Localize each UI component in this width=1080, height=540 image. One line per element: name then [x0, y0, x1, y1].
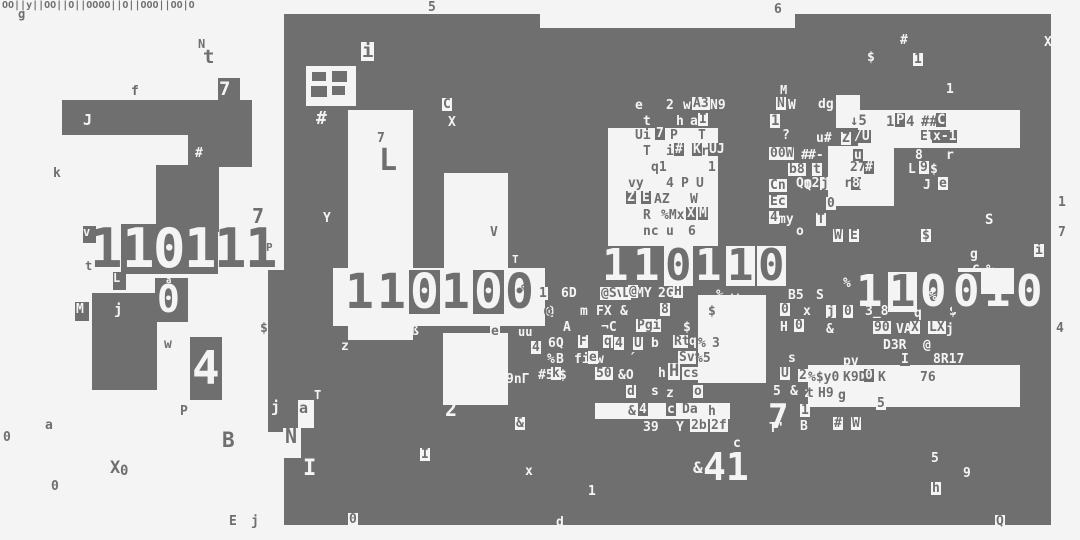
glyph: E [806, 108, 820, 132]
glyph: N [776, 97, 786, 110]
window-icon-pane [312, 72, 326, 81]
glyph: M [780, 84, 787, 96]
glyph: U [696, 177, 704, 190]
glyph: 1 [1058, 196, 1066, 209]
glyph: K9D [843, 371, 866, 384]
glyph: w [731, 291, 739, 304]
glyph: R [643, 209, 651, 222]
big-number-3-digit: 1 [888, 272, 917, 312]
glyph: E [641, 191, 651, 204]
glyph: D3R [883, 339, 906, 352]
big-number-0-digit: 1 [90, 224, 123, 274]
glyph: 1 [800, 404, 810, 417]
glyph: P [681, 177, 689, 190]
glyph: $ [867, 51, 875, 64]
window-icon-pane [332, 86, 345, 95]
glyph: a [690, 115, 698, 128]
big-number-3-digit: 0 [1016, 272, 1043, 312]
glyph: 7 [219, 80, 230, 99]
glyph: T [643, 145, 651, 158]
glyph: V [490, 226, 498, 239]
glyph: uu [518, 326, 532, 338]
glyph: 9 [919, 161, 929, 174]
glyph: x [525, 465, 533, 478]
glyph: nc [643, 225, 659, 238]
glyph: # [833, 417, 843, 430]
glyph: @ [923, 339, 931, 352]
glyph: & [628, 405, 636, 418]
glyph: u# [816, 132, 832, 145]
glyph: h [708, 405, 716, 418]
glyph: 5 [931, 452, 939, 465]
glyph: my [778, 213, 794, 226]
glyph: g [18, 8, 25, 20]
glyph: 6 [773, 3, 783, 16]
glyph: $ [930, 163, 938, 176]
big-number-2-digit: 1 [633, 246, 660, 286]
glyph: 5 [876, 397, 886, 410]
glyph: h [931, 482, 941, 495]
glyph: 1 [708, 161, 716, 174]
glyph: @ [544, 305, 552, 318]
glyph: 4 [614, 337, 624, 350]
glyph: & [620, 305, 628, 318]
glyph: P [670, 129, 678, 142]
glyph: E [228, 515, 238, 528]
glyph: J [83, 113, 92, 128]
glyph: $ [708, 305, 716, 318]
glyph: I [698, 113, 708, 126]
glyph: Sv [678, 351, 696, 364]
glyph: M [698, 207, 708, 220]
glyph: j [946, 323, 954, 336]
glyph: X [686, 207, 696, 220]
glyph: T' [769, 422, 785, 435]
glyph: & [790, 385, 798, 398]
glyph: AZ [654, 193, 670, 206]
glyph: w [683, 99, 691, 112]
glyph: 1 [770, 114, 780, 128]
glyph: 0 [826, 197, 836, 210]
glyph: NRQ6 [891, 98, 922, 111]
big-number-0-digit: 1 [183, 224, 218, 274]
glyph: LX [928, 321, 946, 334]
glyph: pv [843, 355, 859, 368]
glyph: 6D [561, 287, 577, 300]
glyph: q [688, 335, 698, 348]
glyph: 1 [946, 83, 954, 96]
glyph: i [361, 42, 374, 61]
block [92, 293, 157, 390]
glyph: j [114, 303, 122, 317]
glyph: S [816, 289, 824, 302]
glyph: 3 [712, 337, 720, 350]
glyph: Cn [769, 179, 787, 192]
glyph: t [812, 163, 822, 176]
glyph: q1 [651, 161, 667, 174]
big-number-2-digit: 0 [664, 246, 693, 286]
glyph: M [76, 303, 84, 316]
big-number-3-digit: 0 [920, 272, 947, 312]
glyph: 8 [660, 303, 670, 316]
glyph: g [970, 248, 978, 261]
glyph: P [895, 113, 905, 127]
block [268, 270, 284, 400]
glyph: e [490, 325, 500, 338]
glyph: 7 [1058, 226, 1066, 239]
glyph: 6 [688, 225, 696, 238]
glyph: A3 [692, 97, 710, 110]
glyph: ß [411, 325, 419, 338]
glyph: 0 [348, 513, 358, 526]
glyph: $ [921, 229, 931, 242]
glyph: 4 [192, 345, 220, 391]
glyph: & [693, 460, 703, 476]
glyph: 2 [798, 369, 808, 382]
big-number-3-digit: 0 [952, 272, 981, 312]
glyph: P [180, 405, 188, 418]
glyph: # [900, 34, 908, 47]
glyph: 0 [843, 305, 853, 318]
glyph: B [222, 430, 235, 451]
glyph: #- [808, 149, 824, 162]
glyph: cs [682, 367, 700, 380]
glyph: /U [853, 130, 871, 143]
glyph: 00W [769, 147, 794, 160]
glyph: J [923, 179, 931, 192]
glyph: Da [681, 403, 699, 416]
glyph: m [580, 305, 588, 318]
glyph: % [843, 277, 851, 290]
glyph: 2 [445, 399, 457, 419]
glyph: K [878, 371, 886, 384]
big-number-0-digit: 1 [214, 224, 247, 274]
glyph: I [303, 458, 316, 480]
glyph: 2f [710, 419, 728, 432]
glyph: 41 [703, 448, 749, 486]
glyph: d [556, 516, 564, 529]
glyph: 39 [643, 421, 659, 434]
big-number-2-digit: 1 [695, 246, 722, 286]
glyph: T [816, 213, 826, 226]
glyph: & [826, 323, 834, 336]
glyph: 50 [595, 367, 613, 380]
glyph: X [910, 321, 920, 334]
glyph: FX [596, 305, 612, 318]
glyph: 5 [428, 1, 436, 14]
glyph: # [864, 161, 874, 174]
glyph: o [796, 225, 804, 238]
big-number-1-digit: 0 [473, 270, 504, 314]
big-number-1-digit: 0 [409, 270, 440, 314]
glyph: 0 [794, 319, 804, 332]
glyph: 76 [920, 371, 936, 384]
glyph: L [908, 163, 916, 176]
glyph: 1 [538, 287, 548, 300]
glyph: i [666, 145, 674, 158]
glyph: 2 [666, 99, 674, 112]
glyph: 8R17 [933, 353, 964, 366]
glyph: s [788, 352, 796, 365]
glyph: j [820, 177, 830, 190]
glyph: t [643, 115, 651, 128]
glyph: q [603, 335, 613, 348]
glyph: N [285, 426, 297, 446]
glyph: ¬C [601, 321, 617, 334]
glyph: $ [683, 321, 691, 334]
glyph: t [806, 387, 814, 400]
glyph: r [946, 149, 954, 162]
glyph: 0 [2, 431, 12, 444]
glyph: W [851, 417, 861, 430]
glyph: 5 [884, 149, 892, 162]
glyph: N9 [710, 99, 726, 112]
glyph: I [900, 353, 910, 366]
glyph: x-1 [932, 130, 957, 143]
big-number-1-digit: 0 [505, 270, 534, 314]
big-number-1-digit: 1 [377, 270, 406, 314]
glyph: W [833, 229, 843, 242]
glyph: E [849, 229, 859, 242]
glyph: U [633, 337, 643, 350]
glyph: 4 [638, 403, 648, 416]
glyph: # [316, 110, 327, 128]
glyph: w [596, 353, 604, 366]
glyph: u [666, 225, 674, 238]
glyph: Y [676, 421, 684, 434]
patch [540, 14, 795, 28]
glyph: W [690, 193, 698, 206]
glyph: j [271, 400, 280, 415]
glyph: t [203, 48, 214, 67]
glyph: B [556, 353, 564, 366]
glyph: ? [782, 129, 790, 142]
glyph: b8 [788, 163, 806, 176]
glyph: 90 [873, 321, 891, 334]
glyph: 9nΓ [506, 373, 529, 386]
patch [444, 173, 508, 270]
glyph: B5 [788, 289, 804, 302]
glyph: Ec [769, 195, 787, 208]
glyph: 1 [913, 53, 923, 66]
glyph: f [131, 85, 139, 98]
glyph: 0 [780, 303, 790, 316]
glyph: %5 [695, 352, 711, 365]
glyph: Z [499, 389, 507, 402]
glyph: 1 [588, 485, 596, 498]
glyph: ´ [628, 353, 636, 366]
glyph: Z [841, 132, 851, 145]
glyph: 4 [666, 177, 674, 190]
glyph: & [515, 417, 525, 430]
glyph: $ [260, 322, 268, 335]
glyph: X [448, 116, 456, 129]
glyph: H [780, 321, 788, 334]
glyph: C [936, 113, 946, 127]
glyph: X [1044, 36, 1052, 49]
glyph: a [299, 401, 308, 416]
glyph: 9 [963, 467, 971, 480]
glyph: S [984, 213, 994, 227]
glyph: s [651, 385, 659, 398]
glyph: vy [628, 177, 644, 190]
big-number-3-digit: 1 [984, 272, 1011, 312]
big-number-1-digit: 1 [441, 270, 470, 314]
glyph: # [195, 147, 203, 160]
glyph: j [251, 515, 259, 528]
glyph: H [668, 363, 680, 380]
glyph: UJ [708, 143, 726, 156]
glyph: oyk@ [891, 132, 922, 145]
glyph: U [780, 367, 790, 380]
glyph: g [838, 389, 846, 402]
glyph: o [693, 385, 703, 398]
window-icon-pane [311, 86, 327, 97]
big-number-0-digit: 1 [245, 224, 278, 274]
glyph: b [651, 337, 659, 350]
glyph: i [1034, 244, 1044, 257]
glyph: w [164, 338, 172, 351]
big-number-2-digit: 1 [602, 246, 629, 286]
glyph: j [826, 305, 836, 318]
big-number-1-digit: 1 [345, 270, 374, 314]
glyph: h [658, 367, 666, 380]
glyph: d [626, 385, 636, 398]
glyph: Y [323, 212, 331, 225]
glyph: 0 [120, 464, 128, 478]
glyph: 6Q [548, 337, 564, 350]
glyph: C [442, 98, 452, 111]
glyph: 4 [1056, 322, 1064, 335]
glyph: 7 [655, 127, 665, 140]
glyph: $ [559, 369, 567, 382]
glyph: 1 [886, 115, 894, 129]
glyph: e [635, 99, 643, 112]
window-icon-pane [332, 71, 347, 82]
glyph: 0 [864, 369, 874, 382]
glyph: OO||y||OO||O||OOOO||O||OOO||OO|O [2, 1, 195, 11]
glyph: Pgi [636, 319, 661, 332]
glyph: F [578, 335, 588, 348]
glyph: &O [618, 369, 634, 382]
glyph: I [420, 448, 430, 461]
glyph: % [546, 353, 556, 366]
glyph: ↓5 [850, 114, 867, 128]
glyph: 4 [531, 341, 541, 354]
glyph: 2b [690, 419, 708, 432]
glyph: Qm2 [796, 177, 819, 190]
glyph: h [676, 115, 684, 128]
glyph: X [110, 460, 120, 477]
glyph: x [803, 305, 811, 318]
glyph: 4 [906, 115, 914, 129]
glyph: z [666, 387, 674, 400]
glyph: %$y0 [808, 371, 839, 384]
glyph: B [800, 420, 808, 433]
big-number-2-digit: 1 [726, 246, 755, 286]
glyph: k [53, 167, 61, 180]
glyph: A [563, 321, 571, 334]
glyph: W [788, 99, 796, 112]
glyph: H9 [818, 387, 834, 400]
glitch-canvas: OO||y||OO||O||OOOO||O||OOO||OO|OgNtfk47t… [0, 0, 1080, 540]
glyph: a [45, 419, 53, 432]
glyph: 0 [51, 480, 59, 493]
glyph: # [876, 132, 884, 145]
glyph: e [938, 177, 948, 190]
big-number-0-digit: 0 [152, 224, 187, 274]
glyph: T [698, 129, 706, 142]
big-number-3-digit: 1 [856, 272, 883, 312]
glyph: c [666, 403, 676, 416]
glyph: T [314, 389, 321, 401]
glyph: Q [995, 515, 1005, 528]
big-number-0-digit: 1 [121, 224, 156, 274]
big-number-2-digit: 0 [757, 246, 786, 286]
glyph: z [341, 340, 349, 353]
glyph: Z [626, 191, 636, 204]
glyph: # [674, 143, 684, 156]
glyph: Ui [635, 129, 651, 142]
glyph: Mzr [859, 179, 882, 192]
glyph: L [379, 146, 397, 176]
glyph: %Mx [661, 209, 684, 222]
glyph: % [698, 337, 706, 350]
